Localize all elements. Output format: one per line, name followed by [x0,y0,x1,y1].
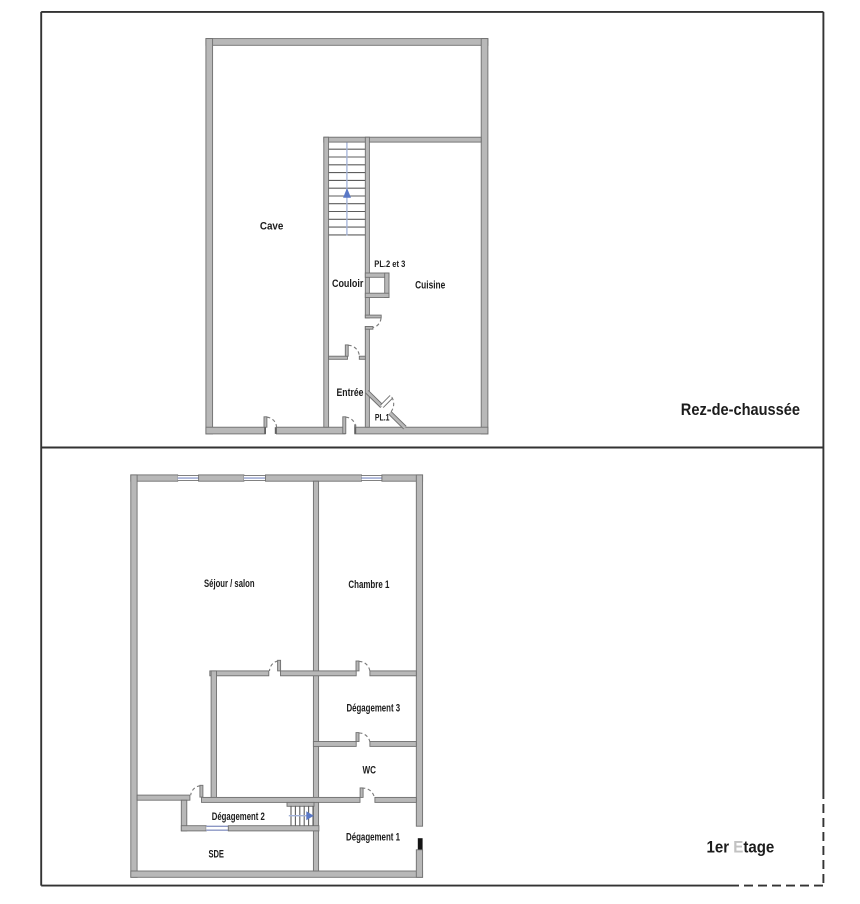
svg-text:Rez-de-chaussée: Rez-de-chaussée [681,400,800,419]
svg-text:Séjour / salon: Séjour / salon [204,578,255,590]
svg-text:SDE: SDE [208,848,224,860]
svg-text:Dégagement 3: Dégagement 3 [346,702,400,714]
svg-text:Couloir: Couloir [332,278,364,290]
svg-text:1er Etage: 1er Etage [707,839,775,857]
svg-text:Dégagement 2: Dégagement 2 [212,811,265,823]
svg-text:WC: WC [362,765,376,777]
svg-text:Cave: Cave [260,220,284,232]
svg-text:Entrée: Entrée [337,387,364,399]
svg-text:Dégagement 1: Dégagement 1 [346,831,400,843]
svg-text:PL.1: PL.1 [375,412,390,422]
svg-text:Cuisine: Cuisine [415,280,445,292]
svg-text:PL.2 et 3: PL.2 et 3 [374,259,405,269]
svg-text:Chambre 1: Chambre 1 [348,579,389,591]
